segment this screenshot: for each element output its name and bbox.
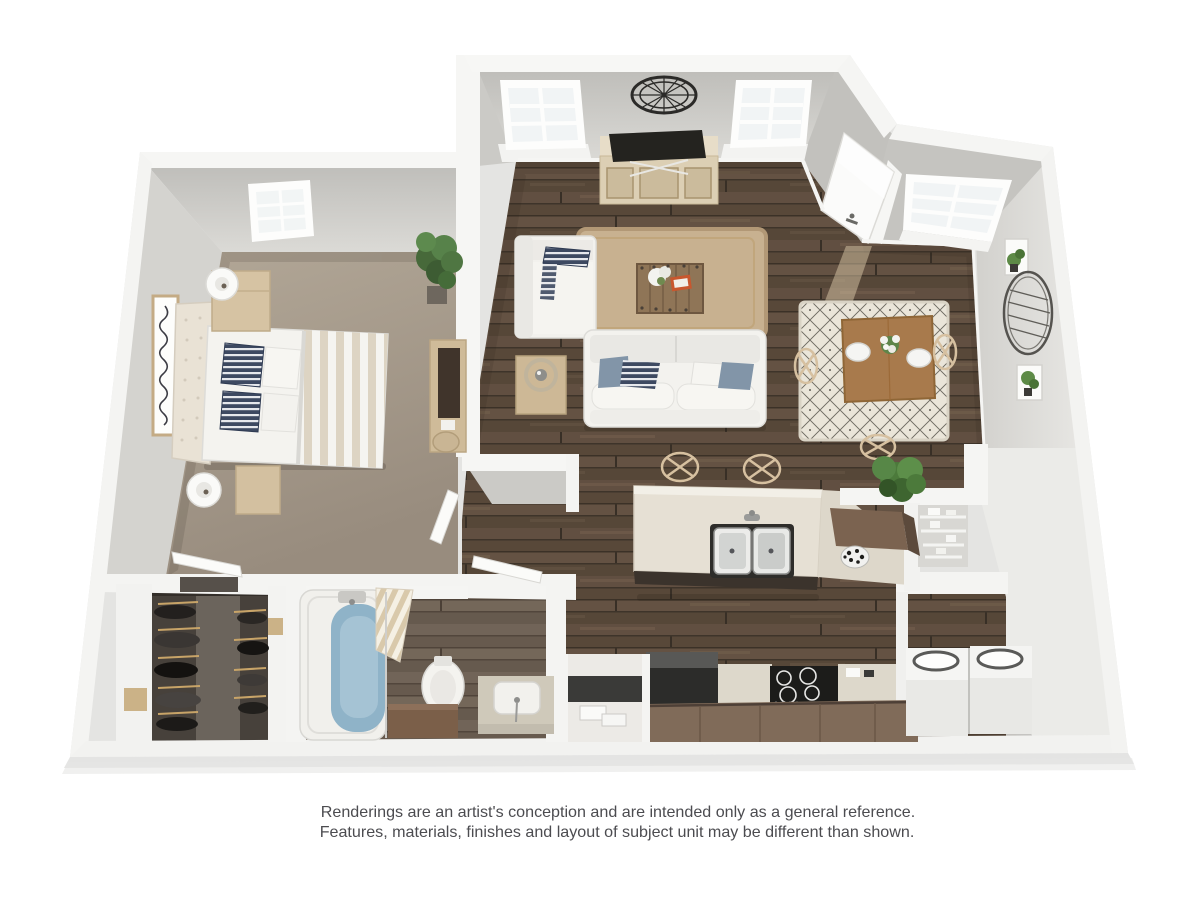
- svg-text:Renderings are an artist's con: Renderings are an artist's conception an…: [321, 803, 915, 821]
- svg-text:Features, materials, finishes: Features, materials, finishes and layout…: [320, 823, 915, 841]
